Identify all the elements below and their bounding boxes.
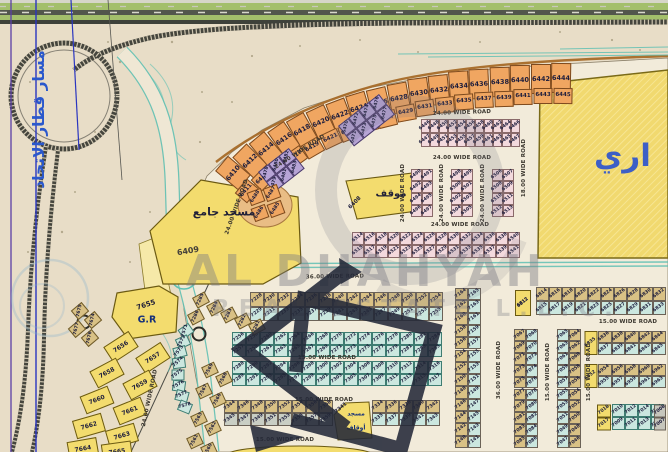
road-label: 24.00 WIDE ROAD	[141, 369, 159, 427]
parking-label: موقف	[376, 189, 407, 200]
road-label: 24.00 WIDE ROAD	[274, 134, 326, 171]
road-label: 15.00 WIDE ROAD	[586, 343, 592, 401]
road-label: 36.00 WIDE ROAD	[496, 341, 502, 399]
small-mosque-label-2: أوقاف	[347, 425, 366, 432]
road-label: 24.00 WIDE ROAD	[433, 109, 491, 117]
road-label: 15.00 WIDE ROAD	[256, 437, 314, 443]
plot-map: مسار قطار الاتحاد 6410641264146416641864…	[0, 0, 668, 452]
watermark-name: AL DHAHYAH	[186, 246, 546, 297]
grand-mosque-label: مسجد جامع	[193, 206, 256, 219]
road-label: 15.00 WIDE ROAD	[545, 343, 551, 401]
road-label: 24.00 WIDE ROAD	[431, 222, 489, 228]
small-mosque-label-1: مسجد	[347, 411, 365, 418]
road-label: 15.00 WIDE ROAD	[298, 355, 356, 361]
gr-plot-label: G.R	[138, 315, 157, 326]
road-labels-layer: 24.00 WIDE ROAD24.00 WIDE ROAD24.00 WIDE…	[0, 0, 668, 452]
watermark-subtitle: REAL ESTATE L.L.C.	[212, 296, 622, 322]
road-label: 24.00 WIDE ROAD	[439, 164, 445, 222]
road-label: 24.00 WIDE ROAD	[433, 155, 491, 161]
road-label: 24.00 WIDE ROAD	[480, 164, 486, 222]
commercial-block-label: اري	[594, 138, 651, 174]
road-label: 18.00 WIDE ROAD	[521, 139, 527, 197]
